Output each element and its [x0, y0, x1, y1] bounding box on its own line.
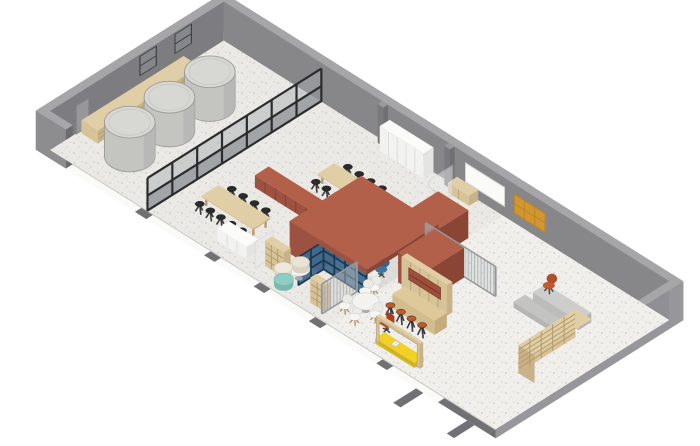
- pouf-cream-1: [292, 257, 310, 274]
- axonometric-floor-plan: [0, 0, 700, 446]
- floor-plan-svg: [0, 0, 700, 446]
- canvas: [0, 0, 700, 446]
- pouf-teal: [274, 273, 293, 291]
- fermentation-tank-1: [104, 106, 155, 172]
